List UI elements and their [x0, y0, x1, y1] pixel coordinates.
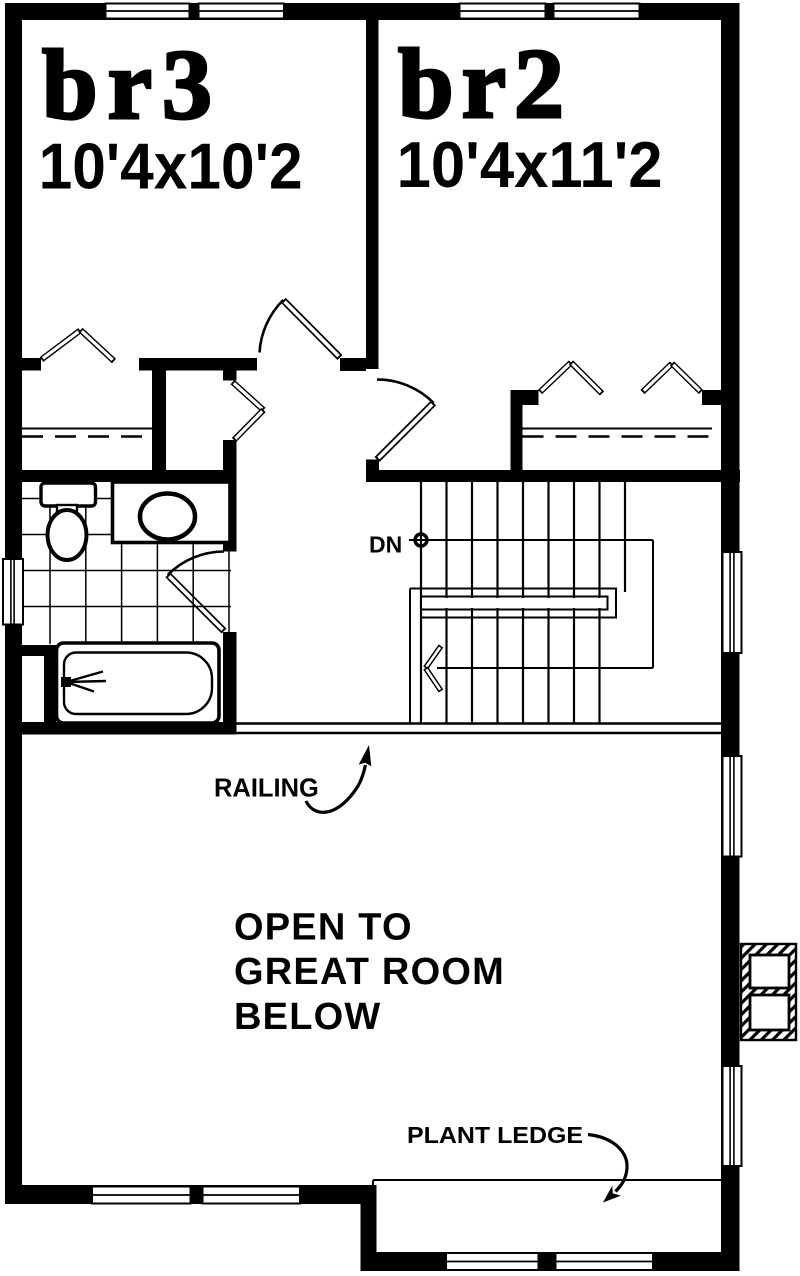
- svg-text:OPEN TO: OPEN TO: [234, 907, 413, 949]
- svg-text:DN: DN: [369, 532, 402, 558]
- svg-text:br3: br3: [42, 29, 222, 140]
- svg-text:BELOW: BELOW: [234, 996, 381, 1038]
- svg-text:br2: br2: [398, 28, 572, 139]
- svg-text:RAILING: RAILING: [214, 775, 319, 803]
- svg-text:PLANT LEDGE: PLANT LEDGE: [407, 1122, 583, 1148]
- svg-text:10'4x11'2: 10'4x11'2: [397, 128, 663, 201]
- svg-text:10'4x10'2: 10'4x10'2: [39, 130, 303, 203]
- svg-text:GREAT ROOM: GREAT ROOM: [234, 951, 505, 993]
